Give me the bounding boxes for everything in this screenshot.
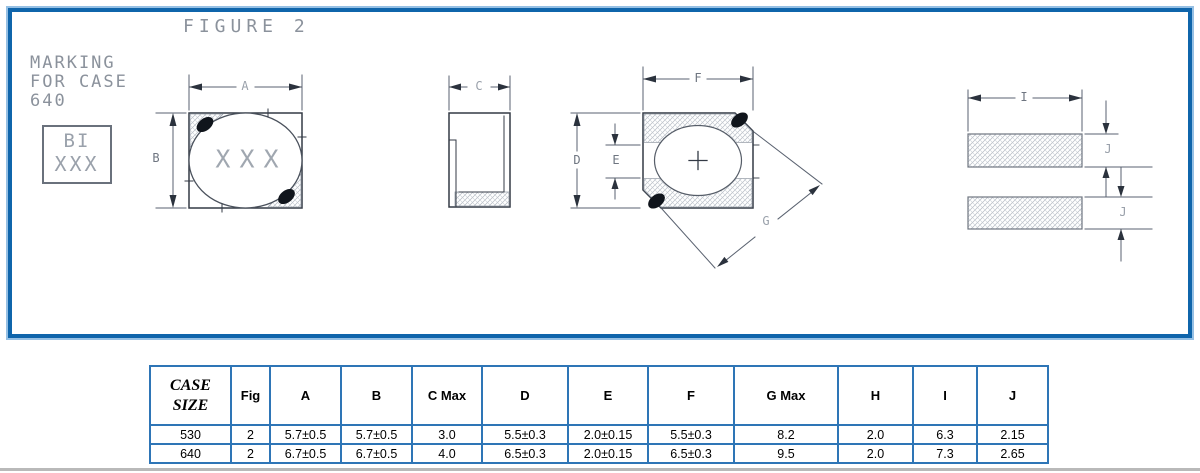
cell: 6.5±0.3: [482, 444, 568, 463]
dim-label-F: F: [694, 71, 701, 85]
dim-label-G: G: [762, 214, 769, 228]
cell: 5.5±0.3: [648, 425, 734, 444]
col-header-h: H: [838, 366, 913, 425]
table-row-640: 640 2 6.7±0.5 6.7±0.5 4.0 6.5±0.3 2.0±0.…: [150, 444, 1048, 463]
col-header-g-max: G Max: [734, 366, 838, 425]
col-header-a: A: [270, 366, 341, 425]
marking-note-line: FOR CASE: [30, 73, 128, 92]
dim-label-J: J: [1119, 205, 1126, 219]
col-header-c-max: C Max: [412, 366, 482, 425]
bottom-divider: [0, 468, 1200, 471]
cell: 2.0: [838, 444, 913, 463]
figure-title: FIGURE 2: [183, 16, 310, 37]
cell: 7.3: [913, 444, 977, 463]
marking-note: MARKING FOR CASE 640: [30, 54, 128, 111]
table-header-row: CASE SIZE Fig A B C Max D E F G Max H I …: [150, 366, 1048, 425]
cell: 2: [231, 425, 270, 444]
drawing-frame: [8, 8, 1192, 338]
cell: 2: [231, 444, 270, 463]
marking-box-line: XXX: [44, 152, 110, 176]
cell: 6.7±0.5: [270, 444, 341, 463]
marking-note-line: MARKING: [30, 54, 128, 73]
col-header-e: E: [568, 366, 648, 425]
col-header-b: B: [341, 366, 412, 425]
cell: 2.0: [838, 425, 913, 444]
marking-example-box: BI XXX: [42, 125, 112, 184]
col-header-d: D: [482, 366, 568, 425]
datasheet-figure-page: FIGURE 2 MARKING FOR CASE 640 BI XXX XXX…: [0, 0, 1200, 473]
cell: 6.5±0.3: [648, 444, 734, 463]
cell: 5.7±0.5: [341, 425, 412, 444]
dim-label-A: A: [241, 79, 248, 93]
marking-note-line: 640: [30, 92, 128, 111]
cell: 640: [150, 444, 231, 463]
dim-label-I: I: [1020, 90, 1027, 104]
dimensions-table: CASE SIZE Fig A B C Max D E F G Max H I …: [149, 365, 1049, 464]
dim-label-D: D: [573, 153, 580, 167]
marking-box-line: BI: [44, 130, 110, 152]
table-row-530: 530 2 5.7±0.5 5.7±0.5 3.0 5.5±0.3 2.0±0.…: [150, 425, 1048, 444]
cell: 8.2: [734, 425, 838, 444]
col-header-f: F: [648, 366, 734, 425]
cell: 2.15: [977, 425, 1048, 444]
cell: 6.7±0.5: [341, 444, 412, 463]
dim-label-C: C: [475, 79, 482, 93]
col-header-case-size: CASE SIZE: [150, 366, 231, 425]
cell: 2.0±0.15: [568, 444, 648, 463]
col-header-fig: Fig: [231, 366, 270, 425]
cell: 9.5: [734, 444, 838, 463]
cell: 5.7±0.5: [270, 425, 341, 444]
dim-label-E: E: [612, 153, 619, 167]
col-header-j: J: [977, 366, 1048, 425]
cell: 2.65: [977, 444, 1048, 463]
cell: 3.0: [412, 425, 482, 444]
cell: 530: [150, 425, 231, 444]
body-marking-text: XXX: [206, 145, 287, 174]
cell: 2.0±0.15: [568, 425, 648, 444]
dim-label-B: B: [152, 151, 159, 165]
cell: 5.5±0.3: [482, 425, 568, 444]
cell: 6.3: [913, 425, 977, 444]
col-header-i: I: [913, 366, 977, 425]
cell: 4.0: [412, 444, 482, 463]
dim-label-J: J: [1104, 142, 1111, 156]
